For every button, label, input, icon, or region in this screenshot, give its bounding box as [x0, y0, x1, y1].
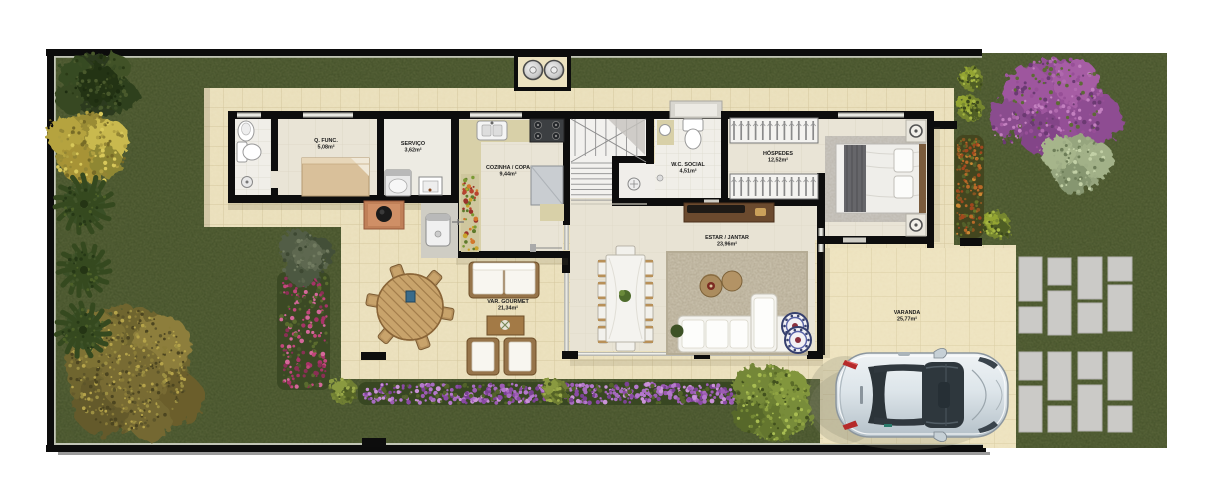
- svg-text:23,96m²: 23,96m²: [717, 242, 737, 248]
- svg-text:SERVIÇO: SERVIÇO: [401, 141, 425, 147]
- svg-text:9,44m²: 9,44m²: [499, 172, 516, 178]
- svg-text:VAR. GOURMET: VAR. GOURMET: [487, 299, 529, 305]
- svg-text:5,08m²: 5,08m²: [317, 145, 334, 151]
- svg-text:Q. FUNC.: Q. FUNC.: [314, 138, 338, 144]
- svg-text:4,51m²: 4,51m²: [679, 169, 696, 175]
- svg-text:VARANDA: VARANDA: [894, 310, 921, 316]
- svg-text:HÓSPEDES: HÓSPEDES: [763, 149, 793, 157]
- svg-text:12,52m²: 12,52m²: [768, 158, 788, 164]
- svg-text:3,62m²: 3,62m²: [404, 148, 421, 154]
- svg-text:21,34m²: 21,34m²: [498, 306, 518, 312]
- svg-text:COZINHA / COPA: COZINHA / COPA: [486, 165, 530, 171]
- svg-text:W.C. SOCIAL: W.C. SOCIAL: [671, 162, 705, 168]
- svg-text:25,77m²: 25,77m²: [897, 317, 917, 323]
- svg-text:ESTAR / JANTAR: ESTAR / JANTAR: [705, 235, 749, 241]
